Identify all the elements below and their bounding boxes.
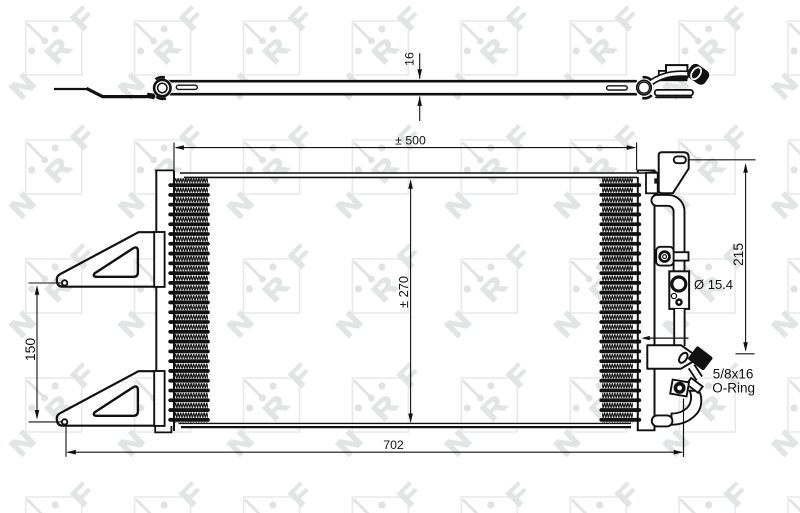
svg-text:702: 702: [383, 438, 404, 452]
svg-text:± 270: ± 270: [396, 276, 411, 308]
svg-text:5/8x16: 5/8x16: [713, 366, 754, 381]
svg-text:215: 215: [731, 243, 746, 266]
svg-text:Ø 15.4: Ø 15.4: [694, 277, 733, 292]
svg-text:O-Ring: O-Ring: [712, 380, 755, 395]
svg-text:16: 16: [403, 52, 417, 66]
svg-text:± 500: ± 500: [395, 133, 426, 147]
svg-text:150: 150: [22, 338, 38, 362]
